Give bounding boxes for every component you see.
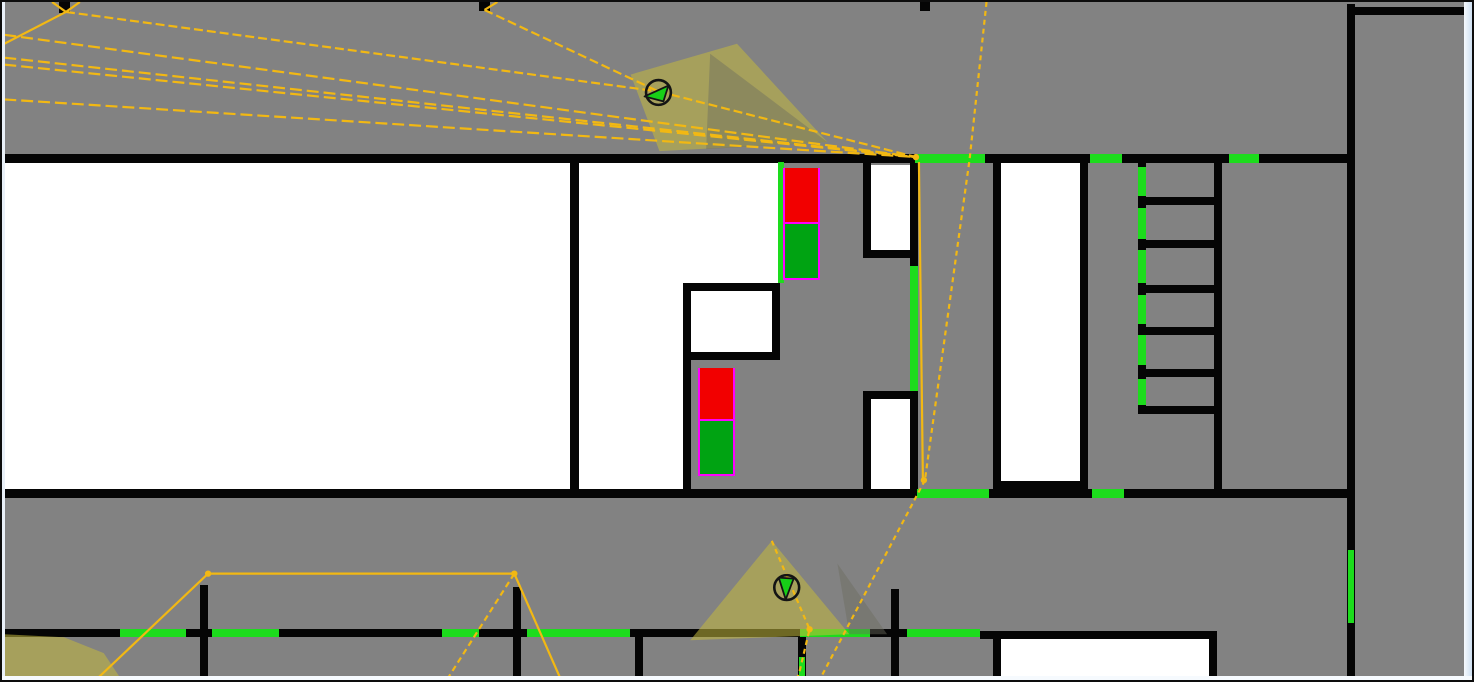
vision-cone: [690, 541, 849, 640]
path-line: [925, 2, 987, 480]
path-line: [66, 12, 659, 92]
path-node-dot: [806, 626, 812, 632]
path-line: [919, 162, 923, 480]
path-node-dot: [205, 570, 211, 576]
path-line: [4, 12, 66, 44]
path-line: [52, 2, 66, 12]
path-node-dot: [511, 570, 517, 576]
path-line: [66, 2, 80, 12]
floorplan-canvas[interactable]: [0, 0, 1474, 682]
path-node-dot: [921, 477, 927, 483]
path-node-dot: [913, 154, 919, 160]
path-line: [96, 574, 561, 680]
paths-overlay: [2, 2, 1472, 680]
path-line: [820, 480, 925, 680]
path-line: [447, 574, 515, 680]
vision-cone-shadow: [706, 54, 827, 149]
path-line: [484, 2, 497, 10]
